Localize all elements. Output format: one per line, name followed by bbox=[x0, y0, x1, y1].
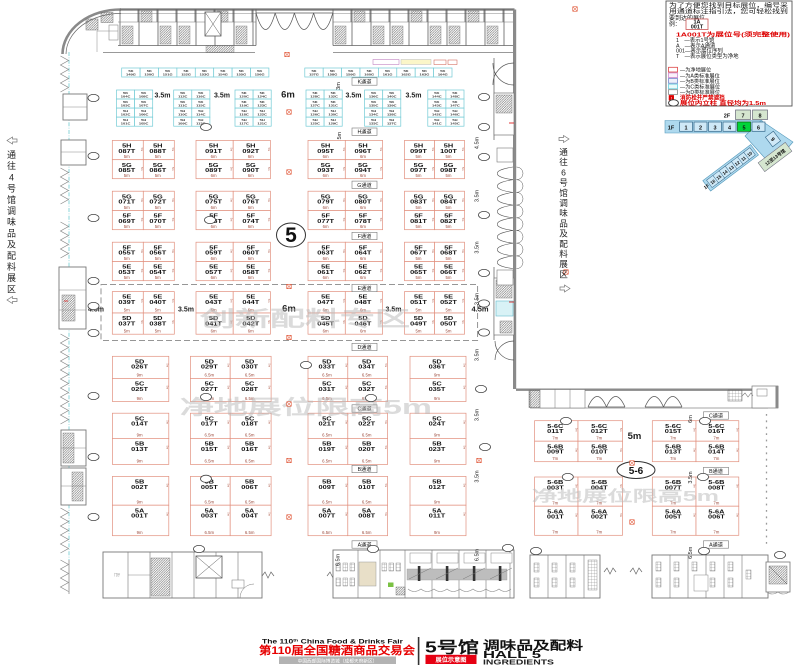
svg-text:5m: 5m bbox=[268, 446, 272, 450]
svg-text:5-6: 5-6 bbox=[629, 466, 644, 477]
svg-text:6.5m: 6.5m bbox=[245, 459, 255, 464]
svg-text:9m: 9m bbox=[434, 373, 440, 378]
svg-text:6.5m: 6.5m bbox=[205, 459, 215, 464]
svg-text:E通道: E通道 bbox=[358, 284, 372, 292]
svg-text:3.5m: 3.5m bbox=[475, 408, 481, 421]
svg-text:配: 配 bbox=[7, 251, 16, 261]
svg-text:126C: 126C bbox=[310, 113, 320, 116]
svg-text:138C: 138C bbox=[387, 113, 397, 116]
svg-text:143C: 143C bbox=[432, 104, 442, 107]
svg-text:7: 7 bbox=[741, 113, 744, 119]
svg-text:014T: 014T bbox=[131, 421, 148, 427]
svg-text:002T: 002T bbox=[131, 485, 148, 491]
svg-text:135C: 135C bbox=[369, 104, 379, 107]
svg-text:2F: 2F bbox=[724, 114, 731, 120]
svg-text:037T: 037T bbox=[118, 321, 135, 327]
svg-text:9m: 9m bbox=[137, 396, 143, 401]
svg-text:153G: 153G bbox=[200, 73, 210, 76]
svg-text:006T: 006T bbox=[708, 514, 725, 520]
svg-text:016T: 016T bbox=[708, 429, 725, 435]
svg-text:6.5m: 6.5m bbox=[322, 433, 332, 438]
svg-text:调: 调 bbox=[7, 206, 16, 216]
svg-text:6m: 6m bbox=[323, 256, 329, 261]
svg-text:148C: 148C bbox=[450, 95, 460, 98]
svg-text:5m: 5m bbox=[384, 446, 388, 450]
svg-text:118C: 118C bbox=[239, 113, 249, 116]
svg-text:展位内立柱 直径均为1.5m: 展位内立柱 直径均为1.5m bbox=[680, 99, 766, 107]
svg-text:5m: 5m bbox=[416, 224, 422, 229]
svg-text:5m: 5m bbox=[619, 513, 623, 517]
svg-text:号: 号 bbox=[7, 184, 16, 194]
svg-text:5号馆: 5号馆 bbox=[425, 638, 479, 657]
svg-text:5m: 5m bbox=[735, 448, 739, 452]
svg-text:5m: 5m bbox=[463, 446, 467, 450]
svg-text:6m: 6m bbox=[360, 256, 366, 261]
svg-text:1: 1 bbox=[684, 125, 687, 131]
svg-text:5m: 5m bbox=[267, 218, 271, 222]
svg-text:5m: 5m bbox=[379, 198, 383, 202]
svg-text:141C: 141C bbox=[432, 122, 442, 125]
svg-text:130C: 130C bbox=[328, 113, 338, 116]
svg-text:6.5m: 6.5m bbox=[245, 530, 255, 535]
svg-text:5m: 5m bbox=[267, 148, 271, 152]
svg-text:5m: 5m bbox=[379, 269, 383, 273]
svg-text:3.5m: 3.5m bbox=[346, 93, 362, 100]
svg-text:3.5m: 3.5m bbox=[178, 307, 194, 314]
svg-text:6m: 6m bbox=[323, 205, 329, 210]
svg-text:155G: 155G bbox=[236, 73, 246, 76]
svg-text:5m: 5m bbox=[155, 307, 161, 312]
svg-text:品: 品 bbox=[559, 218, 568, 228]
svg-text:022T: 022T bbox=[358, 421, 375, 427]
svg-text:5m: 5m bbox=[171, 269, 175, 273]
svg-text:003T: 003T bbox=[201, 513, 218, 519]
svg-text:8: 8 bbox=[758, 113, 761, 119]
svg-text:019T: 019T bbox=[318, 447, 335, 453]
svg-text:163G: 163G bbox=[419, 73, 429, 76]
svg-text:142C: 142C bbox=[432, 113, 442, 116]
svg-text:5m: 5m bbox=[463, 420, 467, 424]
svg-text:5m: 5m bbox=[379, 167, 383, 171]
svg-text:9m: 9m bbox=[137, 500, 143, 505]
svg-text:D通道: D通道 bbox=[357, 343, 371, 351]
svg-text:160G: 160G bbox=[364, 73, 374, 76]
svg-text:128C: 128C bbox=[310, 95, 320, 98]
svg-text:021T: 021T bbox=[318, 421, 335, 427]
svg-text:5m: 5m bbox=[446, 256, 452, 261]
svg-text:品: 品 bbox=[7, 228, 16, 238]
svg-text:区: 区 bbox=[559, 269, 568, 279]
svg-text:5m: 5m bbox=[124, 173, 130, 178]
svg-text:017T: 017T bbox=[201, 421, 218, 427]
svg-text:034T: 034T bbox=[358, 364, 375, 370]
svg-text:020T: 020T bbox=[358, 447, 375, 453]
svg-text:5m: 5m bbox=[461, 269, 465, 273]
svg-text:024T: 024T bbox=[429, 421, 446, 427]
svg-text:140C: 140C bbox=[387, 95, 397, 98]
svg-text:6.5m: 6.5m bbox=[205, 500, 215, 505]
svg-text:7m: 7m bbox=[596, 456, 602, 461]
svg-text:5m: 5m bbox=[155, 329, 161, 334]
svg-text:5m: 5m bbox=[416, 154, 422, 159]
svg-text:144C: 144C bbox=[432, 95, 442, 98]
svg-text:5m: 5m bbox=[463, 484, 467, 488]
svg-text:6m: 6m bbox=[211, 224, 217, 229]
svg-text:为了方便您找到目标展位，编号采: 为了方便您找到目标展位，编号采 bbox=[669, 1, 788, 9]
svg-text:123C: 123C bbox=[257, 104, 267, 107]
svg-text:净地展位限高5m: 净地展位限高5m bbox=[180, 395, 432, 419]
svg-text:5m: 5m bbox=[379, 249, 383, 253]
svg-text:5m: 5m bbox=[268, 512, 272, 516]
svg-text:5m: 5m bbox=[155, 154, 161, 159]
svg-text:6.5m: 6.5m bbox=[205, 373, 215, 378]
svg-text:127C: 127C bbox=[310, 104, 320, 107]
svg-text:H通道: H通道 bbox=[357, 128, 371, 136]
svg-text:5m: 5m bbox=[416, 329, 422, 334]
svg-text:101C: 101C bbox=[121, 122, 131, 125]
svg-text:5m: 5m bbox=[155, 224, 161, 229]
svg-text:3m: 3m bbox=[336, 82, 342, 90]
svg-text:5m: 5m bbox=[171, 218, 175, 222]
svg-text:018T: 018T bbox=[241, 421, 258, 427]
svg-text:028T: 028T bbox=[241, 387, 258, 393]
svg-text:161G: 161G bbox=[383, 73, 393, 76]
svg-text:025T: 025T bbox=[131, 387, 148, 393]
svg-text:147C: 147C bbox=[450, 104, 460, 107]
svg-text:5m: 5m bbox=[461, 218, 465, 222]
svg-text:1F: 1F bbox=[668, 125, 675, 131]
svg-text:T —表示展位类型为净地: T —表示展位类型为净地 bbox=[676, 52, 739, 60]
svg-text:5m: 5m bbox=[384, 512, 388, 516]
svg-text:6m: 6m bbox=[248, 224, 254, 229]
svg-text:5m: 5m bbox=[379, 148, 383, 152]
svg-text:105C: 105C bbox=[139, 122, 149, 125]
svg-text:010T: 010T bbox=[591, 449, 608, 455]
svg-text:5m: 5m bbox=[124, 275, 130, 280]
svg-text:5m: 5m bbox=[463, 363, 467, 367]
svg-text:114C: 114C bbox=[196, 113, 206, 116]
svg-text:5m: 5m bbox=[446, 275, 452, 280]
svg-text:料: 料 bbox=[559, 248, 568, 259]
svg-text:3.5m: 3.5m bbox=[155, 93, 171, 100]
svg-text:调: 调 bbox=[559, 198, 568, 208]
svg-text:5m: 5m bbox=[446, 154, 452, 159]
svg-text:164G: 164G bbox=[438, 73, 448, 76]
svg-text:145C: 145C bbox=[450, 122, 460, 125]
svg-text:030T: 030T bbox=[241, 364, 258, 370]
svg-text:5m: 5m bbox=[463, 512, 467, 516]
svg-text:5m: 5m bbox=[416, 307, 422, 312]
svg-text:6m: 6m bbox=[248, 275, 254, 280]
svg-text:6.5m: 6.5m bbox=[245, 433, 255, 438]
svg-text:4: 4 bbox=[9, 172, 14, 182]
svg-text:3.5m: 3.5m bbox=[475, 241, 481, 254]
svg-text:029T: 029T bbox=[201, 364, 218, 370]
svg-text:159G: 159G bbox=[346, 73, 356, 76]
svg-text:012T: 012T bbox=[429, 485, 446, 491]
svg-text:C通道: C通道 bbox=[709, 412, 723, 420]
svg-text:5m: 5m bbox=[124, 154, 130, 159]
svg-text:132C: 132C bbox=[328, 95, 338, 98]
svg-text:第110届全国糖酒商品交易会: 第110届全国糖酒商品交易会 bbox=[259, 643, 416, 657]
svg-text:162G: 162G bbox=[401, 73, 411, 76]
svg-text:134C: 134C bbox=[369, 113, 379, 116]
svg-text:152G: 152G bbox=[181, 73, 191, 76]
svg-text:5m: 5m bbox=[267, 167, 271, 171]
svg-text:156G: 156G bbox=[255, 73, 265, 76]
svg-text:5m: 5m bbox=[384, 386, 388, 390]
svg-text:026T: 026T bbox=[131, 364, 148, 370]
svg-text:6.5m: 6.5m bbox=[322, 530, 332, 535]
svg-text:7m: 7m bbox=[596, 530, 602, 535]
svg-text:6m: 6m bbox=[360, 173, 366, 178]
svg-text:馆: 馆 bbox=[559, 187, 568, 198]
svg-text:2: 2 bbox=[699, 125, 702, 131]
svg-text:136C: 136C bbox=[369, 95, 379, 98]
svg-text:5m: 5m bbox=[461, 299, 465, 303]
svg-text:014T: 014T bbox=[708, 449, 725, 455]
svg-text:7m: 7m bbox=[552, 456, 558, 461]
svg-text:035T: 035T bbox=[429, 387, 446, 393]
svg-text:047T: 047T bbox=[317, 300, 334, 306]
svg-text:5m: 5m bbox=[171, 299, 175, 303]
svg-text:6.5m: 6.5m bbox=[245, 373, 255, 378]
svg-text:6m: 6m bbox=[323, 173, 329, 178]
svg-text:005T: 005T bbox=[665, 514, 682, 520]
svg-text:5m: 5m bbox=[735, 428, 739, 432]
svg-text:7m: 7m bbox=[670, 530, 676, 535]
svg-text:154G: 154G bbox=[218, 73, 228, 76]
svg-text:5m: 5m bbox=[155, 205, 161, 210]
svg-text:050T: 050T bbox=[440, 321, 457, 327]
svg-text:INGREDIENTS: INGREDIENTS bbox=[483, 657, 554, 666]
svg-text:108C: 108C bbox=[139, 95, 149, 98]
svg-text:001T: 001T bbox=[691, 24, 704, 30]
svg-text:122C: 122C bbox=[257, 113, 267, 116]
svg-text:6: 6 bbox=[561, 167, 566, 177]
svg-text:3.5m: 3.5m bbox=[214, 93, 230, 100]
svg-text:6m: 6m bbox=[360, 154, 366, 159]
svg-text:051T: 051T bbox=[410, 300, 427, 306]
svg-text:5m: 5m bbox=[461, 167, 465, 171]
svg-text:5m: 5m bbox=[171, 148, 175, 152]
svg-text:6m: 6m bbox=[211, 154, 217, 159]
svg-text:6m: 6m bbox=[248, 256, 254, 261]
svg-text:9m: 9m bbox=[434, 433, 440, 438]
svg-text:6m: 6m bbox=[323, 154, 329, 159]
svg-text:5m: 5m bbox=[268, 484, 272, 488]
svg-text:B通道: B通道 bbox=[358, 465, 372, 473]
svg-text:6m: 6m bbox=[211, 256, 217, 261]
svg-text:5m: 5m bbox=[384, 420, 388, 424]
svg-text:9m: 9m bbox=[137, 530, 143, 535]
svg-text:及: 及 bbox=[559, 229, 568, 239]
svg-text:110C: 110C bbox=[178, 113, 188, 116]
svg-text:121C: 121C bbox=[257, 122, 267, 125]
svg-text:5m: 5m bbox=[155, 275, 161, 280]
svg-text:9m: 9m bbox=[137, 373, 143, 378]
svg-text:011T: 011T bbox=[547, 429, 563, 435]
svg-text:5m: 5m bbox=[416, 173, 422, 178]
svg-text:015T: 015T bbox=[665, 429, 682, 435]
svg-text:036T: 036T bbox=[429, 364, 446, 370]
svg-text:5m: 5m bbox=[124, 224, 130, 229]
svg-text:6.5m: 6.5m bbox=[362, 500, 372, 505]
svg-text:5m: 5m bbox=[619, 428, 623, 432]
svg-text:7m: 7m bbox=[552, 530, 558, 535]
svg-text:往: 往 bbox=[559, 156, 568, 167]
svg-text:124C: 124C bbox=[257, 95, 267, 98]
svg-text:6m: 6m bbox=[688, 415, 694, 423]
svg-text:7m: 7m bbox=[670, 456, 676, 461]
svg-text:6.5m: 6.5m bbox=[336, 553, 342, 566]
svg-text:6m: 6m bbox=[360, 205, 366, 210]
svg-text:5m: 5m bbox=[124, 329, 130, 334]
svg-text:B通道: B通道 bbox=[709, 467, 723, 475]
svg-text:7m: 7m bbox=[596, 436, 602, 441]
svg-text:门厅: 门厅 bbox=[114, 572, 121, 577]
svg-text:及: 及 bbox=[7, 240, 16, 250]
svg-text:料: 料 bbox=[7, 261, 16, 272]
svg-text:115C: 115C bbox=[196, 104, 206, 107]
svg-text:6.5m: 6.5m bbox=[475, 548, 481, 561]
svg-text:5m: 5m bbox=[124, 256, 130, 261]
svg-text:5m: 5m bbox=[171, 167, 175, 171]
svg-text:5m: 5m bbox=[384, 363, 388, 367]
svg-text:区: 区 bbox=[7, 284, 16, 294]
svg-text:049T: 049T bbox=[410, 321, 427, 327]
svg-text:137C: 137C bbox=[387, 122, 397, 125]
svg-text:6.5m: 6.5m bbox=[245, 500, 255, 505]
svg-text:6m: 6m bbox=[248, 173, 254, 178]
svg-text:125C: 125C bbox=[310, 122, 320, 125]
svg-text:5m: 5m bbox=[463, 386, 467, 390]
svg-text:号: 号 bbox=[559, 178, 568, 188]
svg-text:012T: 012T bbox=[591, 429, 608, 435]
svg-text:中国西部国际博览城（成都天府新区）: 中国西部国际博览城（成都天府新区） bbox=[298, 657, 378, 664]
svg-text:5m: 5m bbox=[165, 446, 169, 450]
svg-text:112C: 112C bbox=[178, 95, 188, 98]
svg-text:043T: 043T bbox=[205, 300, 222, 306]
svg-text:5m: 5m bbox=[379, 299, 383, 303]
svg-text:6.5m: 6.5m bbox=[688, 546, 694, 559]
svg-text:5m: 5m bbox=[628, 431, 642, 442]
svg-text:6m: 6m bbox=[248, 205, 254, 210]
svg-text:5m: 5m bbox=[416, 256, 422, 261]
svg-text:015T: 015T bbox=[201, 447, 218, 453]
svg-text:馆: 馆 bbox=[7, 194, 16, 205]
svg-text:6.5m: 6.5m bbox=[322, 373, 332, 378]
svg-text:7m: 7m bbox=[713, 530, 719, 535]
svg-text:013T: 013T bbox=[131, 447, 148, 453]
svg-text:6m: 6m bbox=[323, 275, 329, 280]
svg-text:119C: 119C bbox=[239, 104, 249, 107]
svg-text:033T: 033T bbox=[318, 364, 335, 370]
svg-text:5m: 5m bbox=[267, 249, 271, 253]
svg-text:味: 味 bbox=[559, 207, 568, 218]
svg-text:6.5m: 6.5m bbox=[205, 530, 215, 535]
svg-text:通: 通 bbox=[7, 150, 16, 160]
svg-text:120C: 120C bbox=[239, 95, 249, 98]
svg-text:027T: 027T bbox=[201, 387, 218, 393]
svg-text:5m: 5m bbox=[124, 205, 130, 210]
svg-text:用通道标注指引法，您可轻松找到: 用通道标注指引法，您可轻松找到 bbox=[669, 8, 788, 16]
svg-text:6.5m: 6.5m bbox=[322, 500, 332, 505]
svg-text:6m: 6m bbox=[248, 154, 254, 159]
svg-text:044T: 044T bbox=[242, 300, 259, 306]
svg-text:9m: 9m bbox=[434, 530, 440, 535]
svg-text:5m: 5m bbox=[267, 299, 271, 303]
svg-text:010T: 010T bbox=[358, 485, 375, 491]
svg-text:111C: 111C bbox=[178, 104, 188, 107]
svg-text:150G: 150G bbox=[144, 73, 154, 76]
svg-text:006T: 006T bbox=[241, 485, 258, 491]
svg-text:5m: 5m bbox=[171, 249, 175, 253]
svg-text:3.5m: 3.5m bbox=[475, 348, 481, 361]
svg-text:5m: 5m bbox=[619, 448, 623, 452]
svg-text:149G: 149G bbox=[126, 73, 136, 76]
svg-text:5m: 5m bbox=[165, 386, 169, 390]
svg-text:6m: 6m bbox=[211, 173, 217, 178]
svg-text:9m: 9m bbox=[434, 459, 440, 464]
svg-text:9m: 9m bbox=[137, 433, 143, 438]
svg-text:5m: 5m bbox=[446, 173, 452, 178]
svg-text:103C: 103C bbox=[121, 104, 131, 107]
svg-text:001T: 001T bbox=[131, 513, 148, 519]
svg-text:5m: 5m bbox=[155, 256, 161, 261]
svg-text:013T: 013T bbox=[665, 449, 682, 455]
svg-text:104C: 104C bbox=[121, 95, 131, 98]
svg-text:7m: 7m bbox=[552, 436, 558, 441]
svg-text:6m: 6m bbox=[211, 275, 217, 280]
svg-text:131C: 131C bbox=[328, 104, 338, 107]
svg-text:5m: 5m bbox=[446, 307, 452, 312]
svg-text:5m: 5m bbox=[446, 205, 452, 210]
svg-text:9m: 9m bbox=[434, 396, 440, 401]
svg-text:5: 5 bbox=[285, 224, 297, 247]
svg-text:107C: 107C bbox=[139, 104, 149, 107]
svg-text:4.5m: 4.5m bbox=[475, 136, 481, 149]
svg-text:001T: 001T bbox=[547, 514, 564, 520]
svg-text:016T: 016T bbox=[241, 447, 258, 453]
svg-text:004T: 004T bbox=[241, 513, 258, 519]
svg-text:6m: 6m bbox=[360, 224, 366, 229]
svg-text:5m: 5m bbox=[446, 329, 452, 334]
svg-text:6m: 6m bbox=[323, 224, 329, 229]
svg-text:3.5m: 3.5m bbox=[406, 93, 422, 100]
svg-text:6.5m: 6.5m bbox=[205, 433, 215, 438]
svg-text:048T: 048T bbox=[355, 300, 372, 306]
svg-text:5m: 5m bbox=[165, 420, 169, 424]
svg-text:9m: 9m bbox=[434, 500, 440, 505]
svg-text:5m: 5m bbox=[461, 249, 465, 253]
svg-text:109C: 109C bbox=[178, 122, 188, 125]
svg-text:5m: 5m bbox=[267, 269, 271, 273]
svg-text:023T: 023T bbox=[429, 447, 446, 453]
svg-text:5m: 5m bbox=[267, 198, 271, 202]
svg-text:7m: 7m bbox=[713, 456, 719, 461]
svg-text:009T: 009T bbox=[318, 485, 335, 491]
svg-text:9m: 9m bbox=[137, 459, 143, 464]
svg-text:F通道: F通道 bbox=[358, 232, 372, 240]
svg-text:102C: 102C bbox=[121, 113, 131, 116]
svg-text:6m: 6m bbox=[281, 90, 295, 101]
svg-text:009T: 009T bbox=[547, 449, 564, 455]
svg-text:6.5m: 6.5m bbox=[362, 530, 372, 535]
svg-text:106C: 106C bbox=[139, 113, 149, 116]
svg-text:5m: 5m bbox=[735, 484, 739, 488]
svg-text:116C: 116C bbox=[196, 95, 206, 98]
